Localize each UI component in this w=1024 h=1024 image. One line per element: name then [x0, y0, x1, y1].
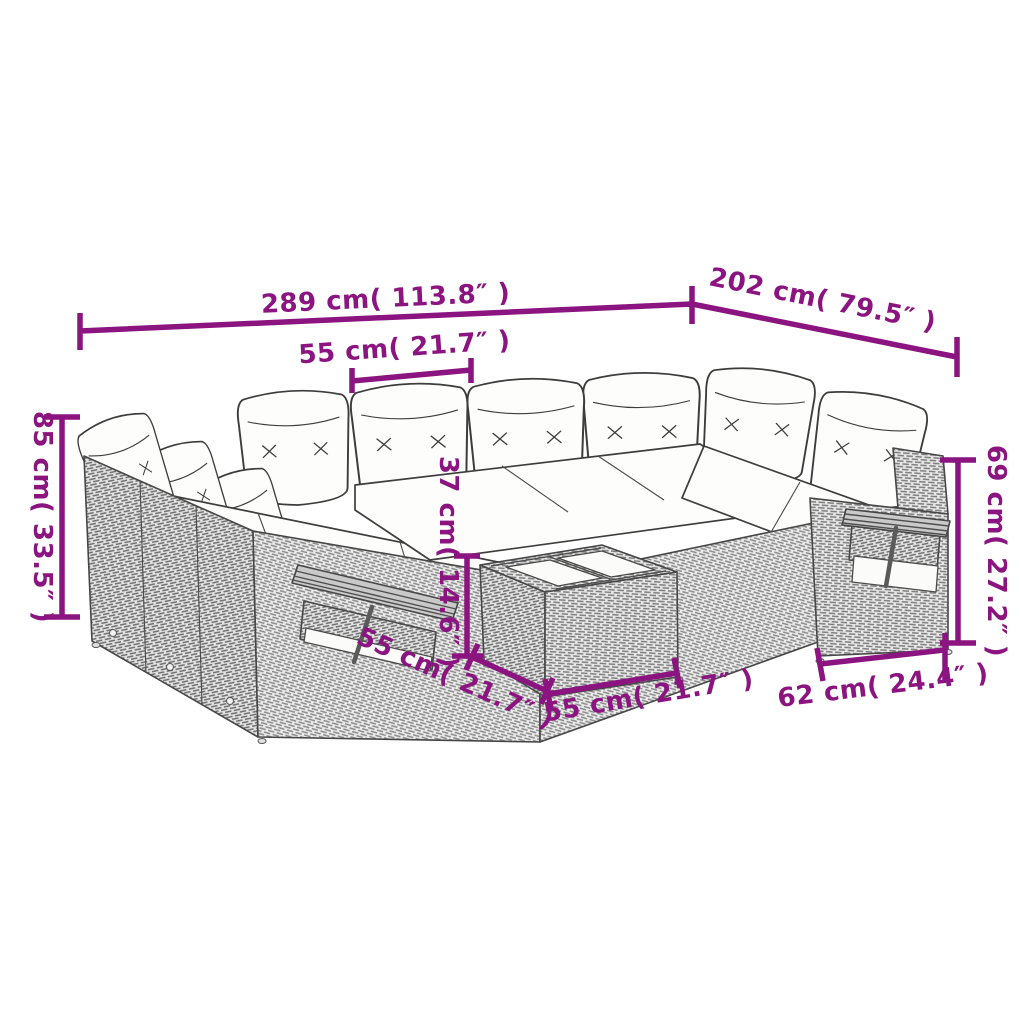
dim-overall-height: 85 cm( 33.5″ )	[27, 411, 80, 623]
dim-seat-width-label: 55 cm( 21.7″ )	[297, 326, 511, 371]
dim-overall-depth: 202 cm( 79.5″ )	[692, 262, 957, 377]
right-arm-block	[893, 448, 948, 514]
dim-backrest-height-label: 69 cm( 27.2″ )	[981, 445, 1011, 657]
dim-overall-height-label: 85 cm( 33.5″ )	[27, 411, 57, 623]
dim-overall-depth-label: 202 cm( 79.5″ )	[706, 262, 938, 337]
dim-seat-depth-label: 62 cm( 24.4″ )	[776, 658, 990, 714]
sofa-dimension-diagram: 289 cm( 113.8″ ) 202 cm( 79.5″ ) 55 cm( …	[0, 0, 1024, 1024]
dim-seat-width: 55 cm( 21.7″ )	[297, 326, 511, 393]
dim-table-height-label: 37 cm( 14.6″ )	[433, 456, 463, 668]
diagram-canvas: 289 cm( 113.8″ ) 202 cm( 79.5″ ) 55 cm( …	[0, 0, 1024, 1024]
dim-backrest-height: 69 cm( 27.2″ )	[940, 445, 1011, 657]
right-tray	[842, 509, 950, 592]
